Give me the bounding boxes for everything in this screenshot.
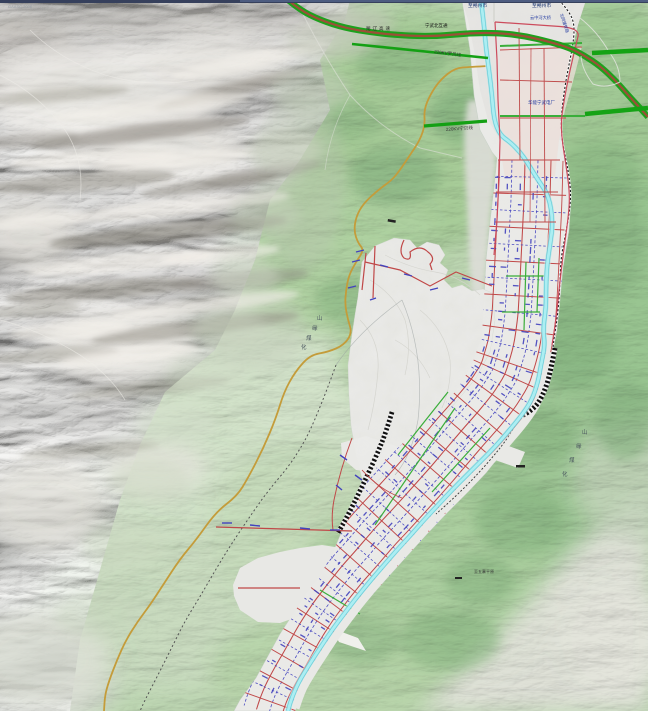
svg-text:煤: 煤 xyxy=(306,334,312,342)
svg-text:山: 山 xyxy=(317,314,323,322)
svg-text:缘: 缘 xyxy=(576,442,582,450)
svg-text:至朔州市: 至朔州市 xyxy=(468,2,487,9)
svg-text:华能宁武电厂: 华能宁武电厂 xyxy=(528,99,555,106)
svg-text:化: 化 xyxy=(562,470,568,478)
svg-text:云中河大桥: 云中河大桥 xyxy=(530,14,552,21)
svg-text:缘: 缘 xyxy=(312,324,318,332)
svg-text:朔辽高速: 朔辽高速 xyxy=(366,25,392,32)
svg-text:煤: 煤 xyxy=(569,456,575,464)
svg-text:至朔州市: 至朔州市 xyxy=(532,2,551,9)
svg-text:山: 山 xyxy=(582,428,588,436)
svg-text:宁武北互通: 宁武北互通 xyxy=(425,22,448,29)
svg-text:至五寨平原: 至五寨平原 xyxy=(474,568,494,574)
svg-text:GAASC 2006: GAASC 2006 xyxy=(8,4,33,9)
svg-text:化: 化 xyxy=(301,343,307,351)
